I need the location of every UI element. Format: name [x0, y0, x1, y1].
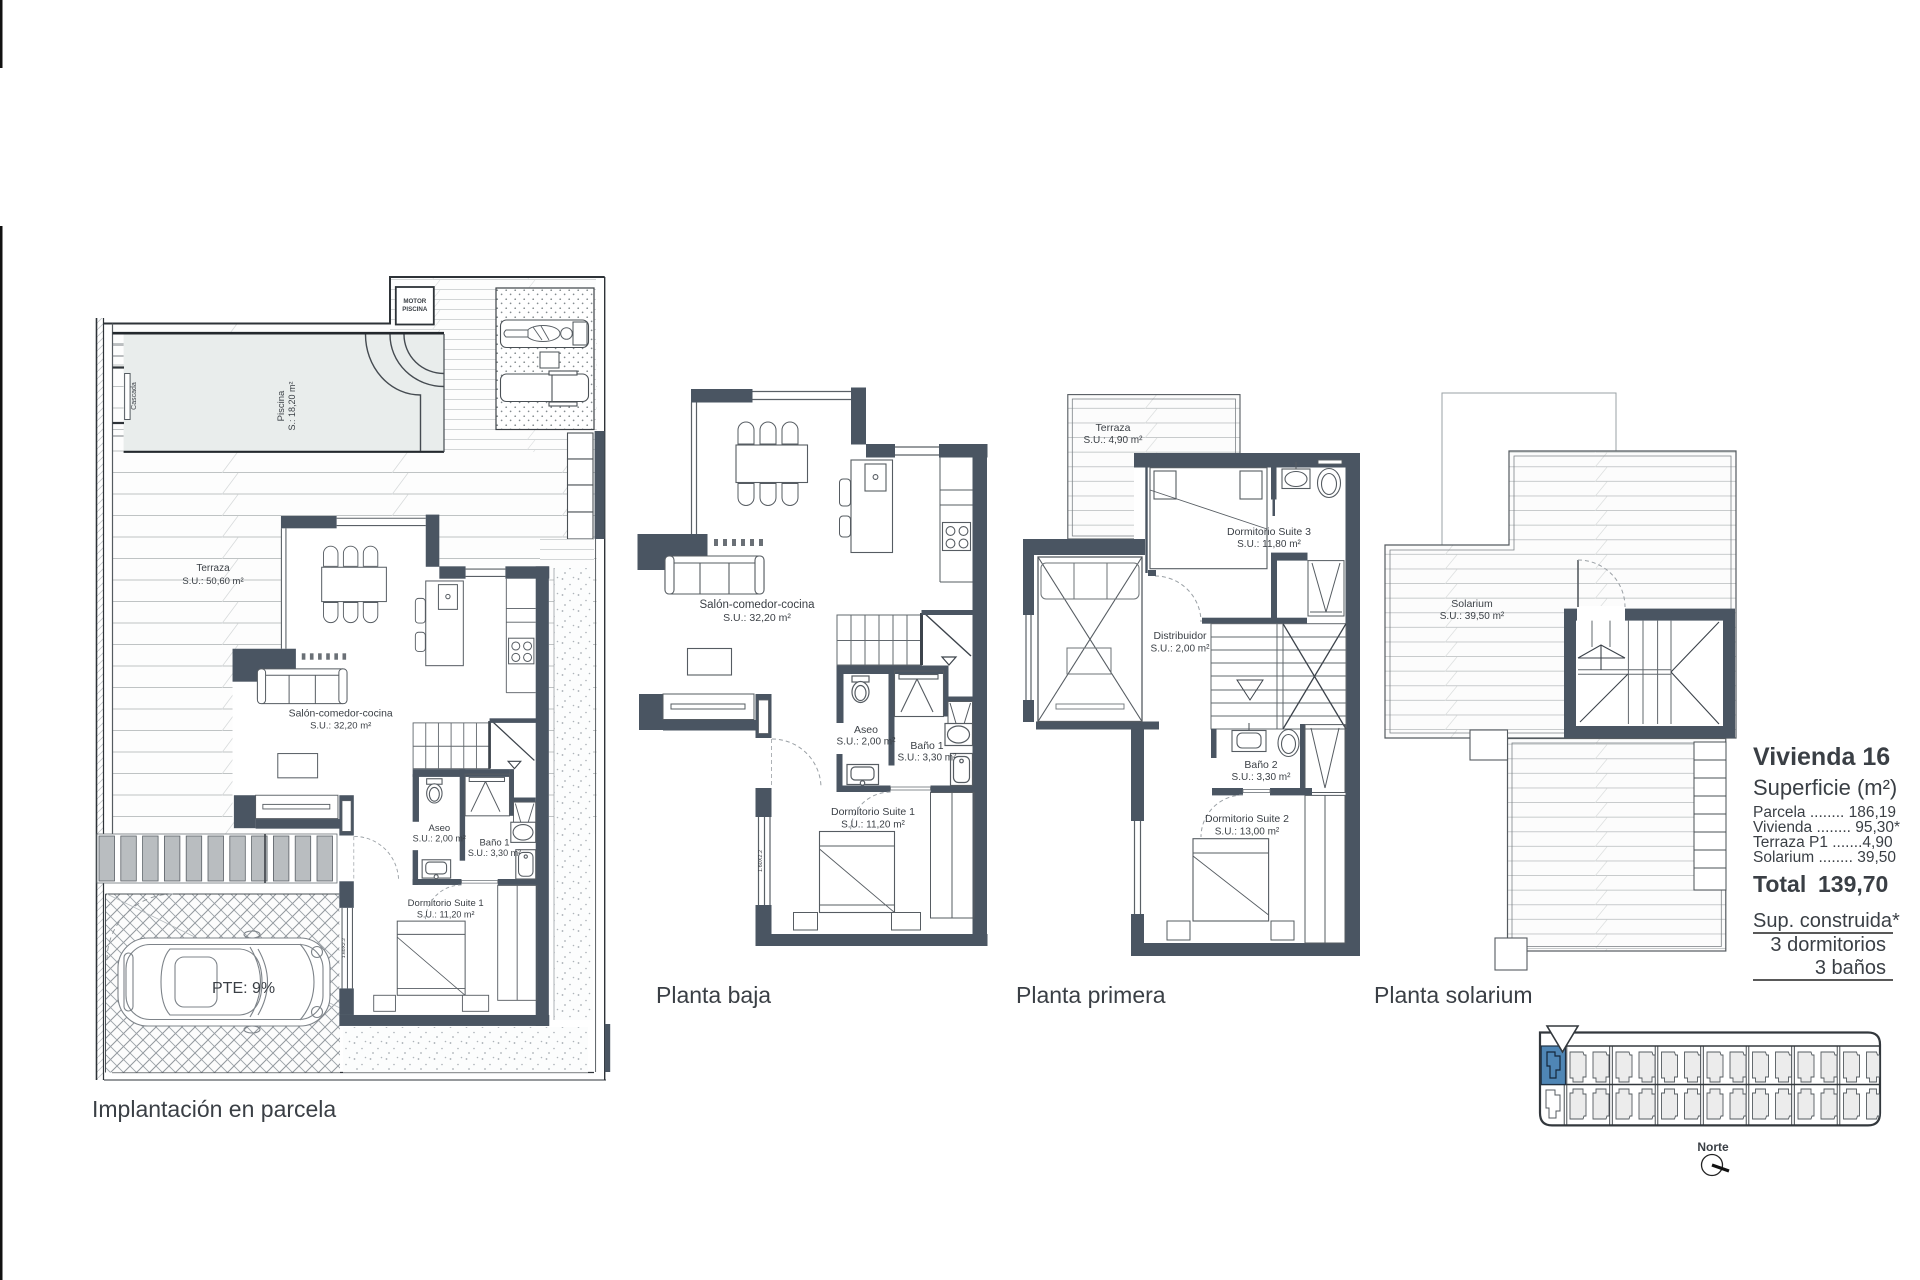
svg-text:S.U.: 50,60 m²: S.U.: 50,60 m² [182, 576, 243, 587]
svg-text:MOTOR: MOTOR [403, 298, 426, 305]
svg-text:S.U.: 13,00 m²: S.U.: 13,00 m² [1215, 827, 1280, 838]
svg-text:Planta solarium: Planta solarium [1374, 982, 1533, 1008]
svg-text:Vivienda 16: Vivienda 16 [1753, 743, 1890, 771]
svg-text:Norte: Norte [1697, 1140, 1729, 1154]
svg-text:S.: 18,20 m²: S.: 18,20 m² [287, 381, 297, 430]
svg-text:Terraza: Terraza [1095, 422, 1130, 434]
svg-text:3 baños: 3 baños [1815, 957, 1886, 979]
svg-text:Planta baja: Planta baja [656, 982, 771, 1008]
svg-text:Baño 2: Baño 2 [1244, 759, 1277, 771]
svg-text:Solarium ........ 39,50: Solarium ........ 39,50 [1753, 849, 1896, 866]
svg-text:S.U.: 3,30 m²: S.U.: 3,30 m² [1232, 772, 1292, 783]
svg-text:139,70: 139,70 [1818, 871, 1888, 897]
svg-text:Superficie (m²): Superficie (m²) [1753, 775, 1897, 800]
svg-text:S.U.: 4,90 m²: S.U.: 4,90 m² [1084, 435, 1144, 446]
svg-text:Dormitorio Suite 2: Dormitorio Suite 2 [1205, 813, 1289, 825]
svg-text:Dormitorio Suite 3: Dormitorio Suite 3 [1227, 526, 1311, 538]
svg-text:Terraza: Terraza [196, 563, 230, 574]
svg-text:Total: Total [1753, 871, 1806, 897]
svg-text:PISCINA: PISCINA [402, 306, 428, 313]
svg-text:PTE: 9%: PTE: 9% [212, 980, 275, 997]
svg-text:Piscina: Piscina [276, 390, 287, 421]
svg-text:3 dormitorios: 3 dormitorios [1770, 934, 1886, 956]
svg-text:Planta primera: Planta primera [1016, 982, 1166, 1008]
svg-text:S.U.: 39,50 m²: S.U.: 39,50 m² [1440, 611, 1505, 622]
svg-text:Implantación en parcela: Implantación en parcela [92, 1096, 336, 1122]
svg-text:Solarium: Solarium [1451, 598, 1493, 610]
svg-text:Distribuidor: Distribuidor [1153, 630, 1207, 642]
svg-text:Cascada: Cascada [131, 382, 138, 410]
svg-text:S.U.: 2,00 m²: S.U.: 2,00 m² [1151, 644, 1211, 655]
svg-text:S.U.: 11,80 m²: S.U.: 11,80 m² [1237, 539, 1301, 550]
svg-text:Sup. construida*: Sup. construida* [1753, 910, 1900, 932]
